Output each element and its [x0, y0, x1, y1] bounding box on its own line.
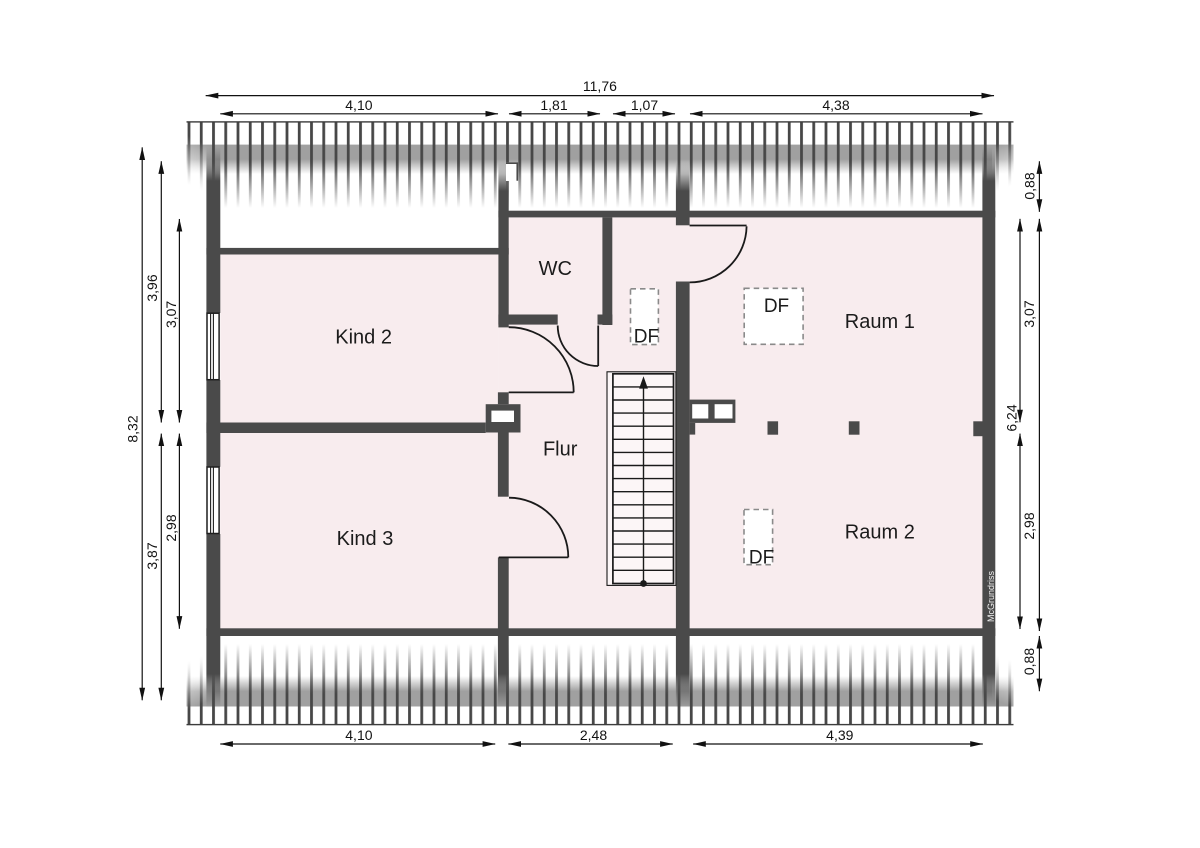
svg-text:8,32: 8,32 [124, 415, 140, 442]
svg-text:DF: DF [749, 548, 774, 569]
svg-text:Kind 2: Kind 2 [335, 327, 392, 349]
svg-text:4,38: 4,38 [822, 97, 849, 113]
svg-text:4,10: 4,10 [345, 727, 372, 743]
svg-text:Raum 2: Raum 2 [845, 521, 915, 543]
svg-text:3,07: 3,07 [163, 301, 179, 328]
svg-text:0,88: 0,88 [1021, 648, 1037, 675]
svg-text:DF: DF [634, 326, 659, 347]
svg-text:4,10: 4,10 [345, 97, 372, 113]
svg-text:DF: DF [764, 296, 789, 317]
svg-text:6,24: 6,24 [1004, 404, 1020, 431]
svg-text:Flur: Flur [543, 438, 578, 460]
svg-text:WC: WC [539, 258, 572, 280]
svg-text:11,76: 11,76 [583, 78, 617, 94]
svg-text:Kind 3: Kind 3 [337, 528, 394, 550]
svg-text:1,07: 1,07 [631, 97, 658, 113]
svg-text:0,88: 0,88 [1022, 172, 1038, 199]
svg-text:1,81: 1,81 [540, 97, 567, 113]
svg-text:3,87: 3,87 [144, 542, 160, 569]
svg-text:2,98: 2,98 [163, 514, 179, 541]
svg-text:2,98: 2,98 [1021, 512, 1037, 539]
svg-text:2,48: 2,48 [580, 727, 607, 743]
svg-text:Raum 1: Raum 1 [845, 311, 915, 333]
svg-text:4,39: 4,39 [826, 727, 853, 743]
svg-text:3,07: 3,07 [1021, 300, 1037, 327]
svg-text:McGrundriss: McGrundriss [986, 571, 996, 623]
svg-text:3,96: 3,96 [144, 274, 160, 301]
